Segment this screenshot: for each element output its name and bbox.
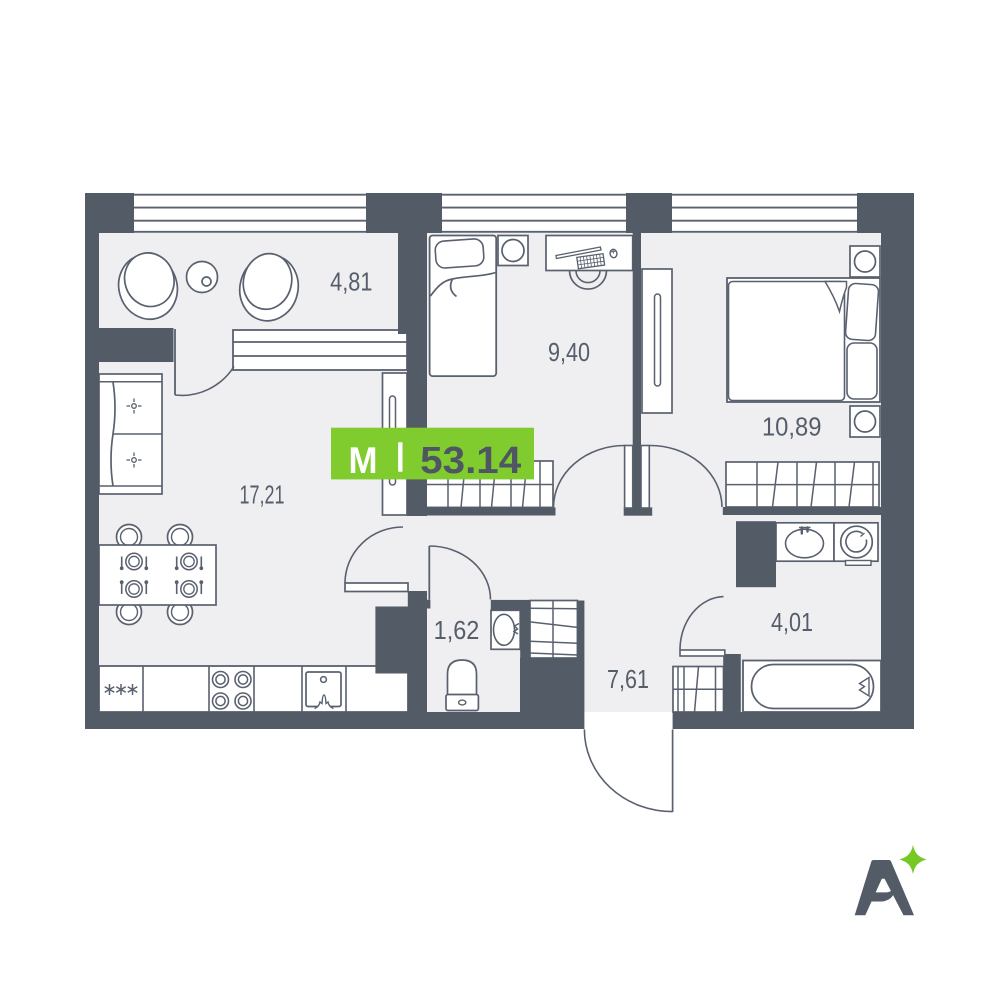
svg-text:1,62: 1,62 — [434, 615, 480, 645]
svg-text:7,61: 7,61 — [607, 664, 649, 694]
svg-text:М: М — [349, 440, 378, 481]
svg-text:17,21: 17,21 — [240, 480, 285, 510]
svg-text:9,40: 9,40 — [548, 337, 590, 367]
svg-text:4,01: 4,01 — [771, 607, 813, 637]
svg-text:53.14: 53.14 — [420, 440, 521, 482]
svg-text:4,81: 4,81 — [330, 266, 372, 296]
svg-text:10,89: 10,89 — [762, 412, 822, 442]
